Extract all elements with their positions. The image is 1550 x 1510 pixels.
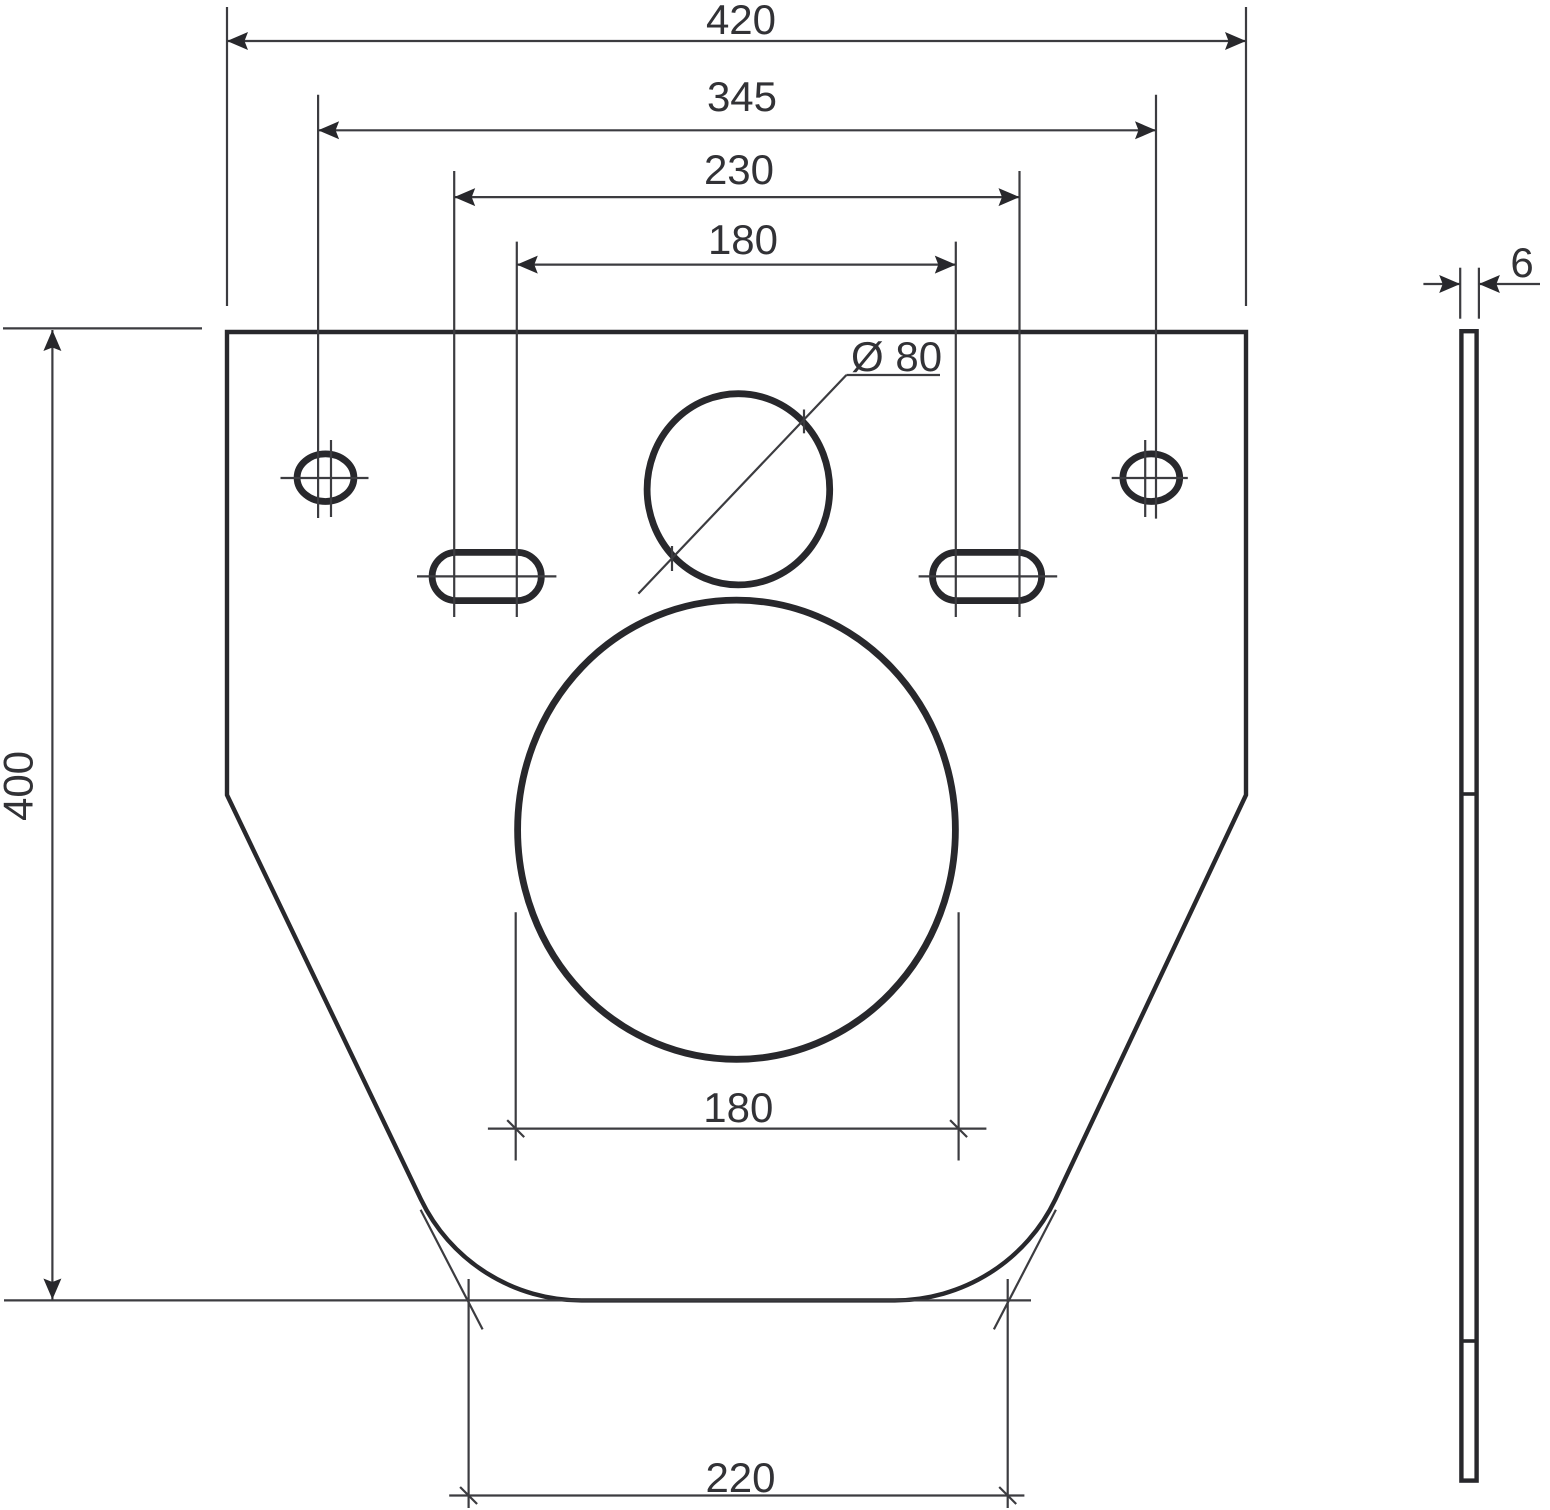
svg-text:230: 230 (704, 146, 774, 193)
svg-text:220: 220 (705, 1454, 775, 1501)
svg-text:180: 180 (703, 1084, 773, 1131)
svg-text:345: 345 (707, 73, 777, 120)
svg-text:6: 6 (1510, 239, 1533, 286)
svg-text:420: 420 (706, 0, 776, 43)
svg-text:180: 180 (708, 216, 778, 263)
svg-text:Ø 80: Ø 80 (851, 333, 942, 380)
svg-text:400: 400 (0, 751, 42, 821)
